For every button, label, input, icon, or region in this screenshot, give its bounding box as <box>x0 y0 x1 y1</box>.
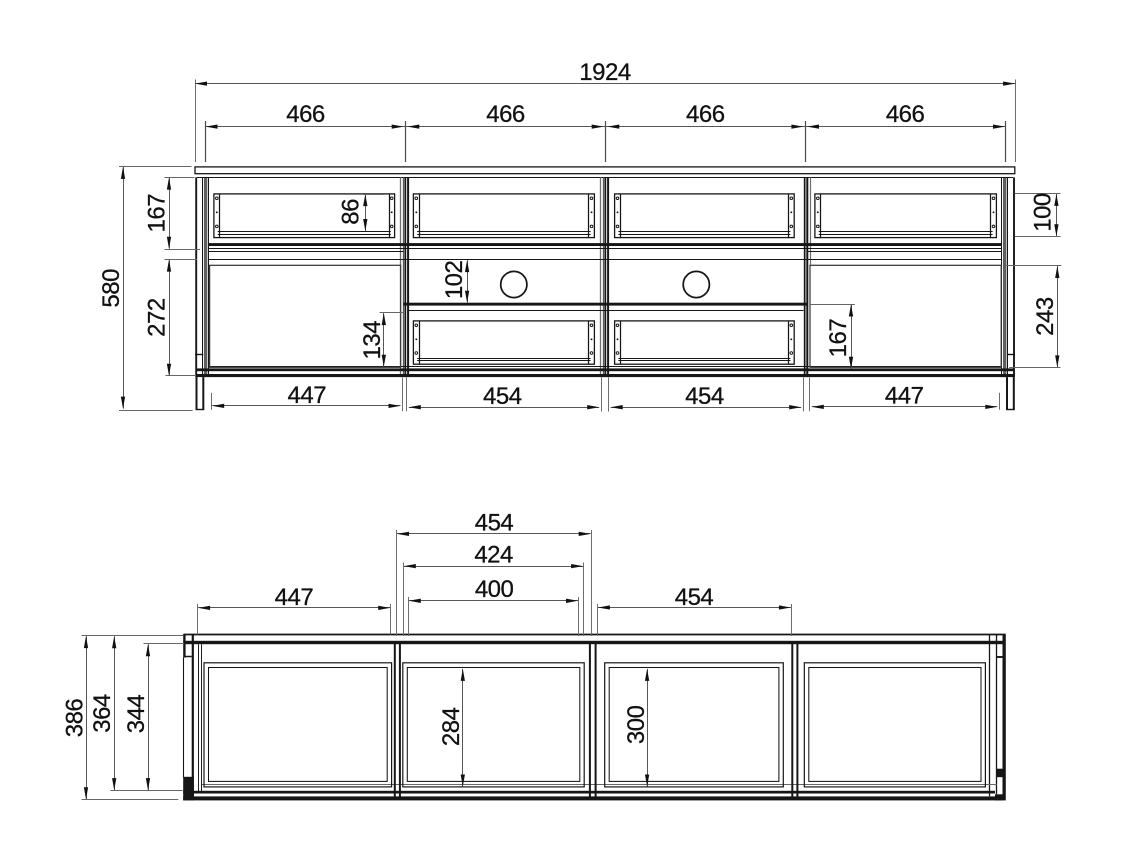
svg-text:102: 102 <box>441 260 468 299</box>
svg-text:167: 167 <box>144 194 171 233</box>
svg-text:466: 466 <box>486 101 525 128</box>
svg-text:300: 300 <box>623 705 650 744</box>
svg-text:86: 86 <box>337 199 364 225</box>
svg-text:1924: 1924 <box>579 59 631 86</box>
svg-text:386: 386 <box>61 699 88 738</box>
svg-text:167: 167 <box>825 319 852 358</box>
svg-text:243: 243 <box>1032 297 1059 336</box>
svg-text:447: 447 <box>885 382 924 409</box>
svg-text:466: 466 <box>886 101 925 128</box>
svg-text:364: 364 <box>89 694 116 733</box>
svg-text:454: 454 <box>675 584 714 611</box>
svg-text:284: 284 <box>438 707 465 746</box>
svg-text:134: 134 <box>359 321 386 360</box>
svg-text:454: 454 <box>483 383 522 410</box>
svg-text:100: 100 <box>1029 193 1056 232</box>
svg-text:454: 454 <box>685 383 724 410</box>
svg-text:466: 466 <box>286 101 325 128</box>
svg-text:447: 447 <box>288 382 327 409</box>
svg-text:344: 344 <box>123 695 150 734</box>
svg-text:447: 447 <box>275 584 314 611</box>
svg-text:454: 454 <box>475 509 514 536</box>
svg-text:580: 580 <box>98 269 125 308</box>
svg-text:272: 272 <box>144 298 171 337</box>
svg-text:466: 466 <box>686 101 725 128</box>
svg-text:400: 400 <box>475 576 514 603</box>
svg-text:424: 424 <box>474 542 513 569</box>
